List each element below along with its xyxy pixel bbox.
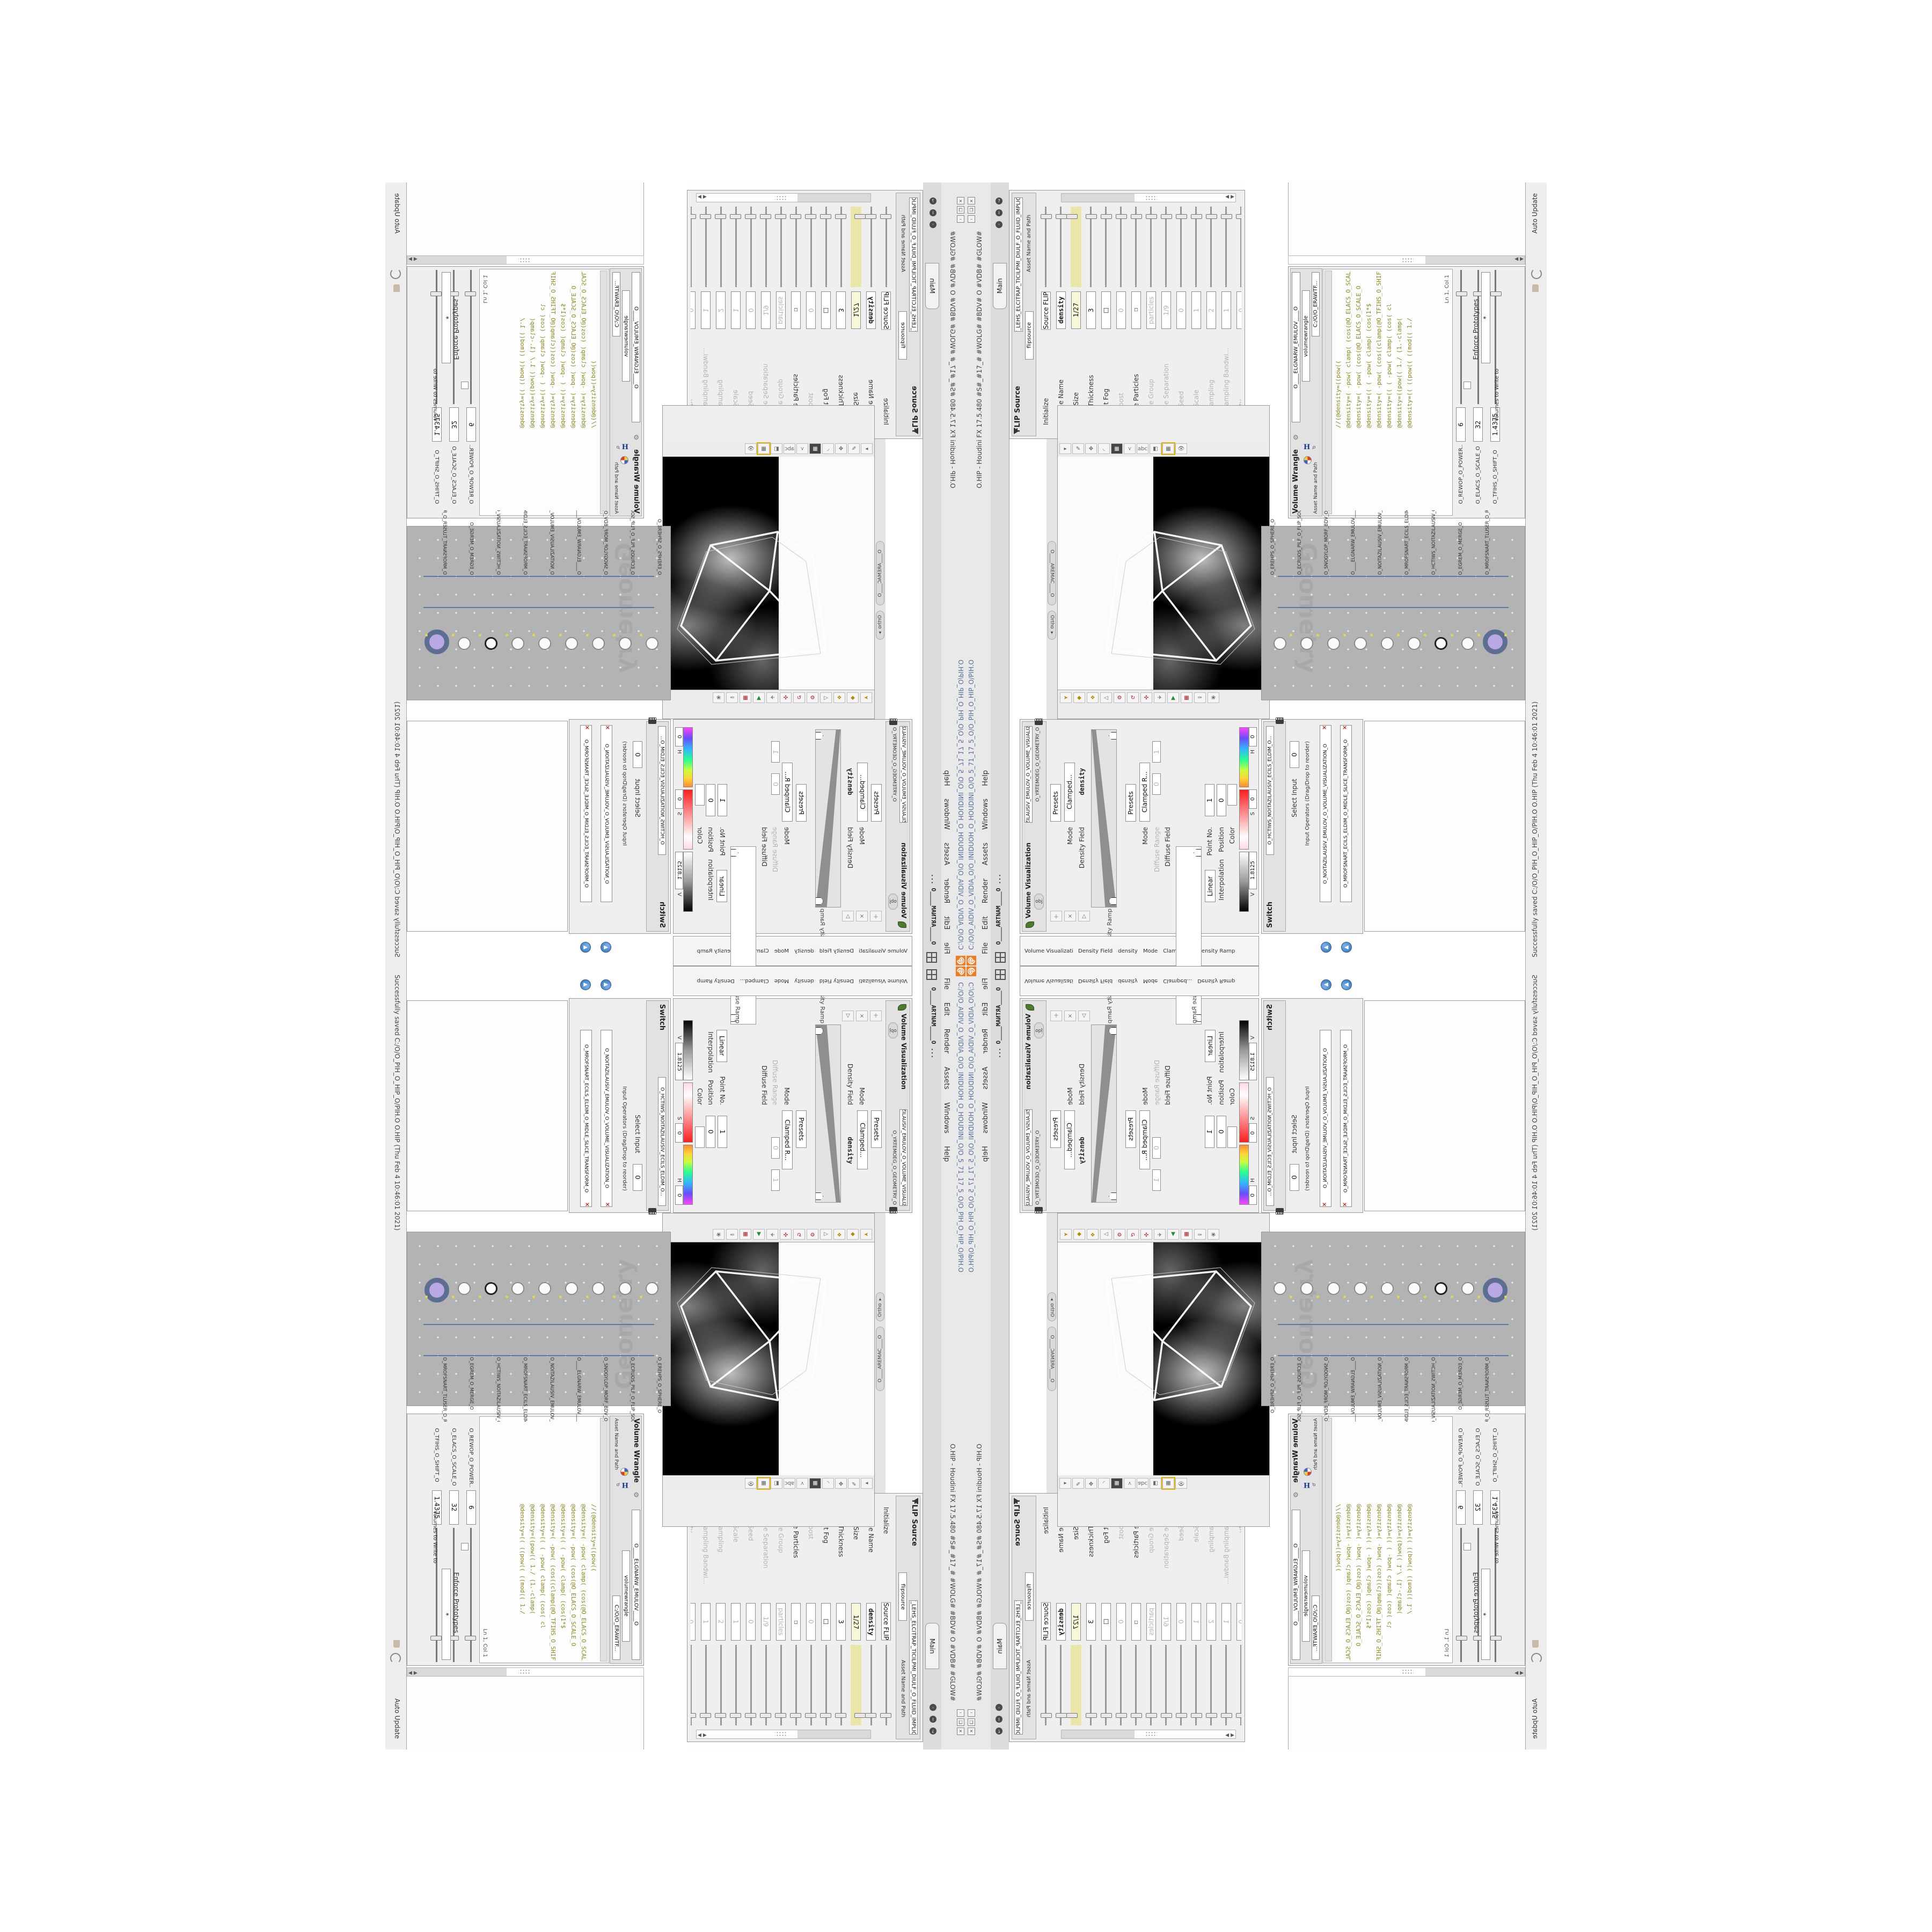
- houdini-h-icon[interactable]: H: [1304, 1481, 1310, 1489]
- param-slider[interactable]: [765, 207, 767, 287]
- param-slider[interactable]: [1120, 1645, 1122, 1725]
- delete-point-button[interactable]: ×: [856, 1011, 868, 1021]
- wrangle-node-name-field[interactable]: O____ELGNARW_EMULOV____O: [1292, 1510, 1300, 1660]
- param-value[interactable]: 1/9: [1161, 1603, 1171, 1641]
- node-circle[interactable]: [458, 1282, 471, 1295]
- menu-item[interactable]: Render: [942, 1029, 950, 1053]
- display-flag[interactable]: [613, 634, 616, 636]
- s-value[interactable]: 0: [675, 1123, 683, 1143]
- flip-param[interactable]: 3 Shell Thickness: [1084, 1497, 1098, 1728]
- param-value[interactable]: 32: [449, 407, 459, 442]
- curve-tool-icon[interactable]: ◟: [822, 1478, 834, 1489]
- fly-tool-icon[interactable]: ✈: [1154, 1229, 1166, 1240]
- node-circle[interactable]: [1354, 1282, 1367, 1295]
- add-point-button[interactable]: ＋: [870, 1011, 882, 1021]
- viz-presets-diffuse[interactable]: Presets: [796, 1110, 807, 1148]
- node-circle[interactable]: [1435, 637, 1447, 650]
- param-value[interactable]: ☐: [822, 1603, 831, 1641]
- ink-tool-icon[interactable]: ✑: [1194, 1229, 1206, 1240]
- param-value[interactable]: Source FLIP: [882, 1602, 891, 1641]
- param-slider[interactable]: [471, 270, 472, 404]
- node-circle[interactable]: [538, 637, 551, 650]
- switch-input-item[interactable]: O_MROFSNART_ECILS_ELDIM_O_MIDLE_SLICE_TR…: [578, 725, 594, 929]
- flip-param[interactable]: particles Particle Group: [1144, 1497, 1158, 1728]
- param-value[interactable]: density: [1056, 291, 1066, 329]
- param-value[interactable]: 0: [1236, 1603, 1242, 1641]
- param-slider[interactable]: [840, 1645, 842, 1725]
- camera-look-icon[interactable]: 👁: [745, 1478, 757, 1489]
- lasso-icon[interactable]: ◁: [1100, 692, 1112, 703]
- param-slider[interactable]: [840, 207, 842, 287]
- flip-param[interactable]: 1 Oversampling Bandwi...: [1219, 1497, 1233, 1728]
- input-arrow-icon[interactable]: ◀: [1321, 979, 1331, 990]
- param-slider[interactable]: [1240, 207, 1241, 287]
- viz-color-swatch[interactable]: [1227, 784, 1237, 806]
- param-value[interactable]: 3: [1086, 291, 1096, 329]
- param-slider[interactable]: [870, 1645, 872, 1725]
- viewport-canvas[interactable]: [1058, 457, 1269, 694]
- flip-param[interactable]: ☐ Create Particles: [1129, 1497, 1143, 1728]
- gear-red-icon[interactable]: ⚙: [807, 1229, 818, 1240]
- value-bar[interactable]: [683, 1020, 693, 1080]
- delete-point-button[interactable]: ×: [1064, 1011, 1076, 1021]
- param-slider[interactable]: [750, 1645, 752, 1725]
- shell-tool-icon[interactable]: ❀: [1207, 692, 1219, 703]
- flip-param[interactable]: 0 Velocity: [691, 204, 698, 435]
- wrangle-scrollbar[interactable]: ◀ ▶: [1288, 255, 1525, 265]
- param-slider[interactable]: [851, 1645, 862, 1725]
- saturation-bar[interactable]: [683, 1082, 693, 1143]
- abc-stamp-icon[interactable]: abc: [784, 443, 795, 454]
- viz-mode-diffuse[interactable]: Clamped R...: [782, 1110, 793, 1169]
- flip-param[interactable]: 0 Fog Boost: [804, 204, 818, 435]
- viz-interp-value[interactable]: Linear: [716, 1030, 727, 1062]
- tab-ortho[interactable]: Ortho ▾: [1048, 1292, 1056, 1321]
- param-value[interactable]: 1/27: [852, 291, 861, 329]
- update-spiral-icon[interactable]: [390, 268, 401, 279]
- param-value[interactable]: 1: [731, 1603, 741, 1641]
- grid-tool-icon[interactable]: ▦: [740, 692, 751, 703]
- param-value[interactable]: 0: [1116, 1603, 1126, 1641]
- flip-param[interactable]: 0 Velocity: [1234, 204, 1241, 435]
- switch-input-item[interactable]: O_NOITAZILAUSIV_EMULOV_O_VOLUME_VISUALIZ…: [1318, 1003, 1334, 1207]
- node-circle[interactable]: [425, 630, 449, 654]
- flip-param[interactable]: particles Particle Group: [774, 1497, 788, 1728]
- wrangle-node-name-field[interactable]: O____ELGNARW_EMULOV____O: [632, 1510, 640, 1660]
- flip-ramp-button[interactable]: △: [1078, 1011, 1090, 1021]
- viz-position-value[interactable]: 0: [1217, 1116, 1226, 1148]
- viz-mode-density[interactable]: Clamped...: [857, 763, 868, 822]
- viewport-canvas[interactable]: [663, 1238, 874, 1475]
- flip-param[interactable]: particles Particle Group: [774, 204, 788, 435]
- viz-diffuse-min[interactable]: 0: [1152, 773, 1161, 795]
- diamond-icon[interactable]: ◆: [847, 1229, 859, 1240]
- flip-param[interactable]: 1 Jitter Scale: [1189, 1497, 1203, 1728]
- ink-tool-icon[interactable]: ✑: [1194, 692, 1206, 703]
- wrangle-node-name-field[interactable]: O____ELGNARW_EMULOV____O: [632, 272, 640, 422]
- add-point-button[interactable]: ＋: [1050, 1011, 1062, 1021]
- viz-diffuse-max[interactable]: 1: [1152, 741, 1161, 763]
- gear-icon[interactable]: ⚙: [1293, 434, 1299, 441]
- param-value[interactable]: density: [1056, 1603, 1066, 1641]
- param-slider[interactable]: [1210, 207, 1212, 287]
- switch-item-name[interactable]: O_NOITAZILAUSIV_EMULOV_O_VOLUME_VISUALIZ…: [601, 1030, 612, 1207]
- param-value[interactable]: 3: [837, 1603, 846, 1641]
- flip-param[interactable]: ☐ Create Particles: [789, 1497, 803, 1728]
- viz-mode-diffuse[interactable]: Clamped R...: [1139, 763, 1150, 822]
- flip-param[interactable]: 1/27 Voxel Size: [849, 204, 863, 435]
- curve-tool-icon[interactable]: ◟: [1098, 443, 1110, 454]
- minimize-icon[interactable]: –: [968, 1709, 975, 1717]
- tab-geometry[interactable]: O_YRTEMOEG_O_GEOMETRY_O: [891, 1130, 897, 1205]
- flip-param[interactable]: ☐ Output Fog: [819, 204, 833, 435]
- switch-item-name[interactable]: O_MROFSNART_ECILS_ELDIM_O_MIDLE_SLICE_TR…: [1340, 1030, 1352, 1207]
- node-circle[interactable]: [485, 637, 497, 650]
- auto-update-label[interactable]: Auto Update: [1531, 193, 1539, 233]
- switch-item-name[interactable]: O_MROFSNART_ECILS_ELDIM_O_MIDLE_SLICE_TR…: [580, 1030, 592, 1207]
- menu-item[interactable]: Edit: [942, 1002, 950, 1016]
- viz-position-value[interactable]: 0: [1217, 784, 1226, 816]
- param-value[interactable]: 2: [716, 1603, 726, 1641]
- tab-main[interactable]: Main: [925, 1623, 939, 1669]
- menu-item[interactable]: Help: [982, 770, 990, 786]
- viz-node-name-field[interactable]: O_NOITAZILAUSIV_EMULOV_O_VOLUME_VISUALIZ…: [899, 726, 908, 823]
- menu-item[interactable]: Help: [942, 770, 950, 786]
- tab-mantra[interactable]: O____ARTNAM____O ...: [930, 987, 937, 1058]
- volumes-field[interactable]: *: [442, 272, 451, 363]
- viz-presets-diffuse[interactable]: Presets: [796, 784, 807, 822]
- param-value[interactable]: 0: [1176, 1603, 1186, 1641]
- param-slider[interactable]: [780, 1645, 782, 1725]
- node-circle[interactable]: [1435, 1282, 1447, 1295]
- update-spiral-icon[interactable]: [390, 1653, 401, 1664]
- enforce-checkbox[interactable]: [461, 1543, 469, 1550]
- v-value[interactable]: 1.8125: [1249, 1043, 1257, 1080]
- s-value[interactable]: 0: [675, 789, 683, 809]
- input-arrow-icon[interactable]: ◀: [601, 979, 611, 990]
- wrangle-path-field[interactable]: C:/O/O_ERAWTF...: [612, 272, 620, 336]
- viz-point-value[interactable]: 1: [1205, 1116, 1214, 1148]
- switch-item-name[interactable]: O_NOITAZILAUSIV_EMULOV_O_VOLUME_VISUALIZ…: [1320, 725, 1331, 902]
- empty-bottom-pane[interactable]: [1364, 721, 1525, 932]
- vex-code-editor[interactable]: //(@density=((pow((@density=( -pow( clam…: [479, 1416, 609, 1663]
- code-scrollbar[interactable]: [1324, 1418, 1332, 1662]
- info-icon[interactable]: i: [930, 1716, 936, 1723]
- obj-flag[interactable]: obj: [888, 894, 898, 910]
- node-circle[interactable]: [646, 1282, 658, 1295]
- value-bar[interactable]: [1239, 1020, 1249, 1080]
- param-value[interactable]: ☐: [792, 1603, 801, 1641]
- scatter-tool-icon[interactable]: ✣: [780, 692, 792, 703]
- switch-item-name[interactable]: O_MROFSNART_ECILS_ELDIM_O_MIDLE_SLICE_TR…: [580, 725, 592, 902]
- dart-yellow-icon[interactable]: ➤: [1060, 692, 1072, 703]
- param-slider[interactable]: [1195, 207, 1197, 287]
- param-slider[interactable]: [1225, 1645, 1227, 1725]
- tab-camera[interactable]: O____AREMAC____O: [876, 1327, 884, 1391]
- viz-mode-density[interactable]: Clamped...: [1064, 1110, 1075, 1169]
- density-ramp-widget[interactable]: [1091, 729, 1117, 908]
- menu-item[interactable]: Windows: [982, 799, 990, 830]
- flip-param[interactable]: 0 Jitter Seed: [744, 1497, 758, 1728]
- node-circle[interactable]: [485, 1282, 497, 1295]
- param-value[interactable]: 0: [747, 1603, 756, 1641]
- node-circle[interactable]: [619, 1282, 632, 1295]
- param-slider[interactable]: [810, 207, 812, 287]
- viewport-canvas[interactable]: [1058, 1238, 1269, 1475]
- node-circle[interactable]: [1354, 637, 1367, 650]
- input-arrow-icon[interactable]: ◀: [601, 942, 611, 953]
- tab-geometry[interactable]: O_YRTEMOEG_O_GEOMETRY_O: [1035, 1130, 1041, 1205]
- display-flag[interactable]: [1290, 1296, 1292, 1298]
- s-value[interactable]: 0: [1249, 789, 1257, 809]
- viz-point-value[interactable]: 1: [718, 1116, 727, 1148]
- switch-input-item[interactable]: O_NOITAZILAUSIV_EMULOV_O_VOLUME_VISUALIZ…: [598, 1003, 614, 1207]
- param-value[interactable]: 32: [1473, 1490, 1483, 1525]
- flip-node-name-field[interactable]: O_EMULOV_LEHS_ELCITRAP_TICILPMI_DIULF_O_…: [1014, 197, 1023, 332]
- switch-node-name-field[interactable]: O_HCTIWS_NOITAZILAUSIV_ECILS_ELDIM_O...: [658, 726, 666, 855]
- remove-item-icon[interactable]: ×: [1342, 1201, 1347, 1208]
- param-slider[interactable]: [705, 1645, 707, 1725]
- switch-node-name-field[interactable]: O_HCTIWS_NOITAZILAUSIV_ECILS_ELDIM_O...: [1266, 726, 1274, 855]
- flip-asset-value[interactable]: flipsource: [1025, 311, 1034, 360]
- tab-ortho[interactable]: Ortho ▾: [876, 611, 884, 640]
- value-bar[interactable]: [683, 852, 693, 912]
- flip-param[interactable]: 1/9 Particle Separation: [1159, 1497, 1173, 1728]
- menu-item[interactable]: Edit: [942, 916, 950, 930]
- param-value[interactable]: 0: [747, 291, 756, 329]
- flip-param[interactable]: 1/27 Voxel Size: [849, 1497, 863, 1728]
- flip-param[interactable]: 2 Oversampling: [1204, 1497, 1218, 1728]
- obj-flag[interactable]: obj: [888, 1022, 898, 1038]
- flip-node-name-field[interactable]: O_EMULOV_LEHS_ELCITRAP_TICILPMI_DIULF_O_…: [1014, 1600, 1023, 1735]
- param-value[interactable]: 1: [731, 291, 741, 329]
- tripod-icon[interactable]: ⋎: [1124, 443, 1136, 454]
- diamond-icon[interactable]: ◆: [1073, 692, 1085, 703]
- param-slider[interactable]: [691, 1645, 692, 1725]
- viz-presets-density[interactable]: Presets: [1050, 1110, 1061, 1148]
- menu-item[interactable]: Render: [942, 879, 950, 903]
- viz-density-field-value[interactable]: density: [846, 1137, 854, 1164]
- param-slider[interactable]: [1105, 1645, 1107, 1725]
- wrangle-param[interactable]: 6 O_REWOP_O_POWER...: [1454, 270, 1468, 516]
- tab-main[interactable]: Main: [993, 1623, 1007, 1669]
- rotate-tool-icon[interactable]: ↻: [793, 692, 805, 703]
- viewport-canvas[interactable]: [663, 457, 874, 694]
- magnifier-icon[interactable]: ⌕: [616, 1481, 620, 1489]
- param-slider[interactable]: [825, 1645, 827, 1725]
- display-flag[interactable]: [1397, 1296, 1400, 1298]
- delete-point-button[interactable]: ×: [1064, 911, 1076, 921]
- volumes-field[interactable]: *: [1481, 1569, 1490, 1660]
- empty-bottom-pane[interactable]: [407, 721, 568, 932]
- hand-icon[interactable]: [393, 1640, 400, 1648]
- node-circle[interactable]: [592, 1282, 605, 1295]
- tripod-icon[interactable]: ⋎: [1124, 1478, 1136, 1489]
- close-icon[interactable]: ×: [968, 197, 975, 204]
- saturation-bar[interactable]: [683, 789, 693, 850]
- param-slider[interactable]: [1071, 207, 1081, 287]
- display-flag[interactable]: [1370, 1296, 1373, 1298]
- menu-item[interactable]: Assets: [942, 843, 950, 865]
- param-slider[interactable]: [1460, 1528, 1462, 1662]
- info-icon[interactable]: i: [996, 1716, 1002, 1723]
- param-slider[interactable]: [1180, 1645, 1182, 1725]
- update-spiral-icon[interactable]: [1531, 1653, 1542, 1664]
- switch-select-value[interactable]: 0: [1290, 1164, 1299, 1191]
- param-slider[interactable]: [720, 207, 722, 287]
- obj-flag[interactable]: obj: [1034, 1022, 1044, 1038]
- display-flag[interactable]: [1316, 634, 1319, 636]
- input-arrow-icon[interactable]: ◀: [1341, 979, 1352, 990]
- vex-code-editor[interactable]: //(@density=((pow((@density=( -pow( clam…: [1323, 269, 1453, 516]
- flip-param[interactable]: density Volume Name: [1053, 204, 1068, 435]
- display-flag[interactable]: [1477, 634, 1480, 636]
- flip-scrollbar[interactable]: ◀ ▶: [696, 193, 871, 202]
- flip-param[interactable]: 1 Oversampling Bandwi...: [1219, 204, 1233, 435]
- diamond-icon[interactable]: ◆: [847, 692, 859, 703]
- wrangle-param[interactable]: 6 O_REWOP_O_POWER...: [464, 1416, 478, 1662]
- display-flag-icon[interactable]: [913, 428, 918, 434]
- viz-position-value[interactable]: 0: [706, 1116, 715, 1148]
- param-slider[interactable]: [825, 207, 827, 287]
- h-value[interactable]: 0: [1249, 1185, 1257, 1205]
- param-slider[interactable]: [885, 207, 887, 287]
- param-value[interactable]: density: [867, 291, 876, 329]
- bag-icon[interactable]: ❖: [1087, 692, 1099, 703]
- switch-node-name-field[interactable]: O_HCTIWS_NOITAZILAUSIV_ECILS_ELDIM_O...: [1266, 1077, 1274, 1206]
- viz-diffuse-max[interactable]: 1: [771, 741, 780, 763]
- switch-input-item[interactable]: O_NOITAZILAUSIV_EMULOV_O_VOLUME_VISUALIZ…: [598, 725, 614, 929]
- param-slider[interactable]: [1150, 207, 1152, 287]
- flip-scrollbar[interactable]: ◀ ▶: [696, 1730, 871, 1739]
- context-ball-icon[interactable]: [1304, 1468, 1312, 1476]
- display-flag[interactable]: [506, 1296, 508, 1298]
- v-value[interactable]: 1.8125: [675, 1043, 683, 1080]
- param-slider[interactable]: [735, 1645, 737, 1725]
- display-flag[interactable]: [1343, 634, 1346, 636]
- magnifier-icon[interactable]: ⌕: [1312, 443, 1316, 451]
- density-ramp-widget[interactable]: [815, 1024, 841, 1203]
- menu-item[interactable]: File: [982, 978, 990, 990]
- tripod-icon[interactable]: ⋎: [796, 443, 808, 454]
- param-value[interactable]: 2: [716, 291, 726, 329]
- flip-param[interactable]: ☐ Output Fog: [819, 1497, 833, 1728]
- abc-stamp-icon[interactable]: abc: [784, 1478, 795, 1489]
- flip-param[interactable]: 3 Shell Thickness: [1084, 204, 1098, 435]
- gear-icon[interactable]: ⚙: [633, 434, 639, 441]
- empty-bottom-pane[interactable]: [407, 1000, 568, 1211]
- network-editor-pane[interactable]: Geometry O_EREHPS_O_SPHERE_O O_ECRUOS_PI…: [1261, 526, 1525, 700]
- param-value[interactable]: Source FLIP: [1041, 1602, 1051, 1641]
- minimize-icon[interactable]: –: [957, 1709, 964, 1717]
- rotate-tool-icon[interactable]: ↻: [1127, 1229, 1139, 1240]
- menu-item[interactable]: Windows: [982, 1102, 990, 1133]
- flip-node-name-field[interactable]: O_EMULOV_LEHS_ELCITRAP_TICILPMI_DIULF_O_…: [909, 1600, 918, 1735]
- viz-color-swatch[interactable]: [695, 784, 705, 806]
- param-value[interactable]: 6: [466, 1490, 476, 1525]
- wrangle-path-field[interactable]: C:/O/O_ERAWTF...: [1312, 1596, 1320, 1660]
- viz-mode-diffuse[interactable]: Clamped R...: [1139, 1110, 1150, 1169]
- param-value[interactable]: 0: [691, 1603, 696, 1641]
- delete-point-button[interactable]: ×: [856, 911, 868, 921]
- viz-presets-density[interactable]: Presets: [871, 784, 882, 822]
- scatter-tool-icon[interactable]: ✣: [1140, 1229, 1152, 1240]
- tab-mantra[interactable]: O____ARTNAM____O ...: [995, 874, 1002, 945]
- param-value[interactable]: ☐: [822, 291, 831, 329]
- prism-icon[interactable]: ▲: [753, 692, 765, 703]
- input-arrow-icon[interactable]: ◀: [580, 979, 591, 990]
- select-arrow-icon[interactable]: ▸: [1059, 443, 1071, 454]
- shell-tool-icon[interactable]: ❀: [713, 692, 724, 703]
- gear-red-icon[interactable]: ⚙: [807, 692, 818, 703]
- display-flag[interactable]: [425, 1296, 428, 1298]
- hue-bar[interactable]: [683, 1145, 693, 1205]
- param-value[interactable]: 1/9: [1161, 291, 1171, 329]
- viz-mode-diffuse[interactable]: Clamped R...: [782, 763, 793, 822]
- lasso-icon[interactable]: ◁: [820, 1229, 832, 1240]
- auto-update-label[interactable]: Auto Update: [393, 1699, 401, 1739]
- code-scrollbar[interactable]: [600, 1418, 608, 1662]
- menu-item[interactable]: Edit: [982, 1002, 990, 1016]
- flip-param[interactable]: 1 Oversampling Bandwi...: [699, 204, 713, 435]
- help-icon[interactable]: ?: [996, 197, 1002, 204]
- node-circle[interactable]: [1381, 637, 1394, 650]
- display-flag[interactable]: [559, 634, 562, 636]
- bag-icon[interactable]: ❖: [1087, 1229, 1099, 1240]
- display-flag[interactable]: [1504, 1296, 1507, 1298]
- display-flag[interactable]: [1343, 1296, 1346, 1298]
- camera-look-icon[interactable]: 👁: [1175, 1478, 1187, 1489]
- param-value[interactable]: 1: [1221, 291, 1231, 329]
- flip-ramp-button[interactable]: △: [842, 911, 854, 921]
- param-value[interactable]: 1/27: [852, 1603, 861, 1641]
- param-value[interactable]: 1: [1191, 1603, 1201, 1641]
- prism-icon[interactable]: ▲: [753, 1229, 765, 1240]
- recent-icon[interactable]: ◦: [930, 221, 936, 228]
- prism-icon[interactable]: ▲: [1167, 692, 1179, 703]
- menu-item[interactable]: Render: [982, 1029, 990, 1053]
- flip-asset-value[interactable]: flipsource: [1025, 1572, 1034, 1621]
- shell-tool-icon[interactable]: ❀: [1207, 1229, 1219, 1240]
- param-slider[interactable]: [691, 207, 692, 287]
- param-slider[interactable]: [810, 1645, 812, 1725]
- abc-stamp-icon[interactable]: abc: [1137, 1478, 1148, 1489]
- param-value[interactable]: 2: [1206, 291, 1216, 329]
- select-arrow-icon[interactable]: ▸: [861, 443, 873, 454]
- param-value[interactable]: 6: [466, 407, 476, 442]
- param-slider[interactable]: [1090, 1645, 1092, 1725]
- code-scrollbar[interactable]: [600, 270, 608, 514]
- param-value[interactable]: particles: [777, 291, 786, 329]
- display-flag[interactable]: [532, 634, 535, 636]
- param-slider[interactable]: [1045, 207, 1046, 287]
- viz-color-swatch[interactable]: [1227, 1126, 1237, 1148]
- node-circle[interactable]: [1483, 630, 1507, 654]
- param-value[interactable]: 1: [701, 1603, 711, 1641]
- shell-tool-icon[interactable]: ❀: [713, 1229, 724, 1240]
- flip-param[interactable]: Source FLIP Initialize: [1038, 204, 1053, 435]
- viz-interp-value[interactable]: Linear: [1205, 870, 1216, 902]
- vex-code-editor[interactable]: //(@density=((pow((@density=( -pow( clam…: [1323, 1416, 1453, 1663]
- flip-param[interactable]: 0 Jitter Seed: [744, 204, 758, 435]
- flip-param[interactable]: density Volume Name: [1053, 1497, 1068, 1728]
- viz-node-name-field[interactable]: O_NOITAZILAUSIV_EMULOV_O_VOLUME_VISUALIZ…: [899, 1109, 908, 1206]
- switch-input-item[interactable]: O_MROFSNART_ECILS_ELDIM_O_MIDLE_SLICE_TR…: [1338, 1003, 1354, 1207]
- viz-density-field-value[interactable]: density: [1078, 1137, 1086, 1164]
- flip-param[interactable]: particles Particle Group: [1144, 204, 1158, 435]
- dart-yellow-icon[interactable]: ➤: [1060, 1229, 1072, 1240]
- help-icon[interactable]: ?: [930, 1728, 936, 1735]
